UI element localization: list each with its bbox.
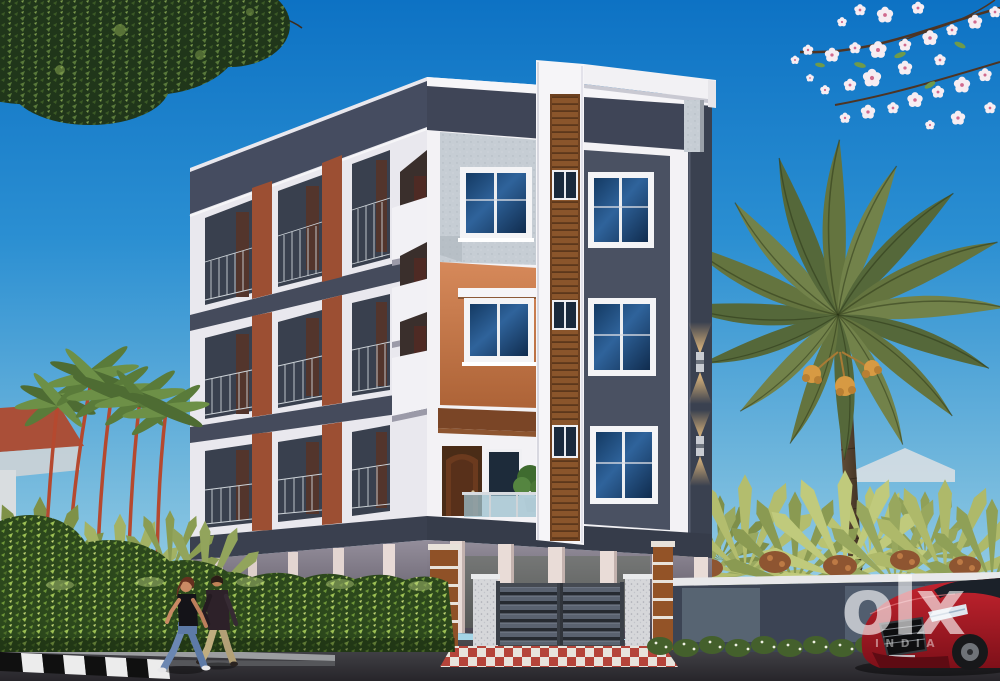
window-f1-right <box>590 426 658 504</box>
render-canvas: olx INDIA <box>0 0 1000 681</box>
gate-right-leaf <box>563 583 620 645</box>
window-f3-right <box>588 172 654 248</box>
window-f2-right <box>588 298 656 376</box>
window-f3-left <box>458 167 534 242</box>
gate-left-leaf <box>500 583 557 645</box>
door-canopy <box>438 408 538 432</box>
watermark-country: INDIA <box>875 638 941 650</box>
scene-render: olx INDIA <box>0 0 1000 681</box>
olx-watermark: olx INDIA <box>841 563 965 653</box>
gate-pillar-brown-right <box>651 541 675 650</box>
gate-pillar-granite-right <box>625 578 650 648</box>
glass-balustrade <box>462 492 546 517</box>
window-f2-left <box>458 288 538 366</box>
gate-pillar-granite-left <box>473 578 498 648</box>
checkered-driveway <box>440 646 678 667</box>
